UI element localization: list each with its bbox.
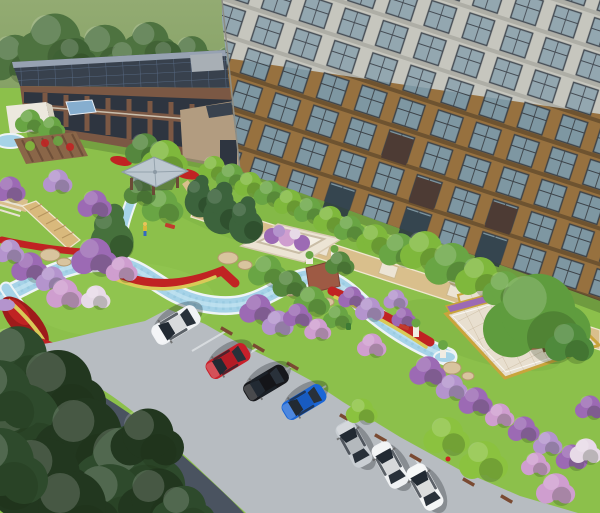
gazebo-post bbox=[130, 178, 133, 190]
pergola-plant bbox=[53, 136, 63, 146]
pergola-plant bbox=[66, 143, 74, 151]
boulder bbox=[57, 258, 71, 266]
boulder bbox=[462, 372, 474, 380]
pergola-plant bbox=[25, 141, 35, 151]
person bbox=[143, 222, 147, 236]
green-barrel bbox=[346, 323, 351, 330]
pergola-plant bbox=[41, 139, 49, 147]
clubhouse-entrance-canopy bbox=[66, 100, 96, 115]
boulder bbox=[238, 261, 252, 270]
entry-pillar bbox=[413, 326, 419, 337]
gazebo-finial bbox=[153, 170, 157, 174]
boulder bbox=[218, 252, 238, 264]
clubhouse-roof-hut bbox=[190, 53, 224, 72]
gazebo-post bbox=[176, 176, 179, 188]
pillar-topiary bbox=[438, 340, 448, 350]
boulder bbox=[443, 362, 461, 374]
pillar-topiary bbox=[306, 251, 314, 259]
boulder bbox=[40, 249, 60, 261]
fire-hydrant bbox=[446, 457, 451, 462]
pillar-topiary bbox=[412, 319, 421, 328]
render-canvas bbox=[0, 0, 600, 513]
